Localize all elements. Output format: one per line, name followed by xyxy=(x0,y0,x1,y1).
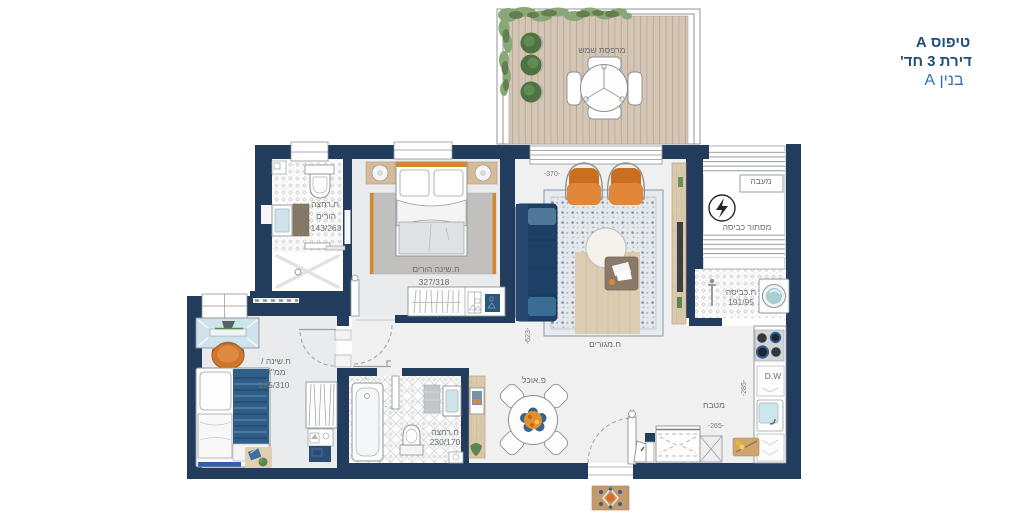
svg-text:D.W: D.W xyxy=(765,371,782,381)
svg-text:דירת 3 חד': דירת 3 חד' xyxy=(900,53,972,70)
svg-text:מעבה: מעבה xyxy=(750,176,771,186)
svg-text:מסתור כביסה: מסתור כביסה xyxy=(723,222,772,232)
svg-text:טיפוס A: טיפוס A xyxy=(916,34,970,51)
svg-text:בנין A: בנין A xyxy=(924,72,964,89)
svg-text:ח.כביסה: ח.כביסה xyxy=(726,287,756,297)
svg-text:ח.רחצה: ח.רחצה xyxy=(311,199,339,209)
svg-text:-285-: -285- xyxy=(741,379,748,396)
svg-text:285/310: 285/310 xyxy=(259,380,290,390)
svg-text:230/170: 230/170 xyxy=(430,437,461,447)
svg-text:ח.רחצה: ח.רחצה xyxy=(431,427,459,437)
svg-text:ח.שינה הורים: ח.שינה הורים xyxy=(412,264,459,274)
svg-text:ממ"ד: ממ"ד xyxy=(266,367,286,377)
svg-text:191/95: 191/95 xyxy=(728,297,754,307)
svg-text:-370-: -370- xyxy=(544,171,561,178)
svg-text:ח.מגורים: ח.מגורים xyxy=(589,339,621,349)
svg-text:327/318: 327/318 xyxy=(419,277,450,287)
svg-text:הורים: הורים xyxy=(316,211,336,221)
svg-text:-265-: -265- xyxy=(708,423,725,430)
svg-text:ח.שינה /: ח.שינה / xyxy=(261,356,291,366)
svg-text:פ.אוכל: פ.אוכל xyxy=(522,375,546,385)
svg-text:מרפסת שמש: מרפסת שמש xyxy=(578,45,625,55)
svg-text:-623-: -623- xyxy=(525,327,532,344)
svg-text:מטבח: מטבח xyxy=(703,400,725,410)
svg-text:143/263: 143/263 xyxy=(311,223,342,233)
